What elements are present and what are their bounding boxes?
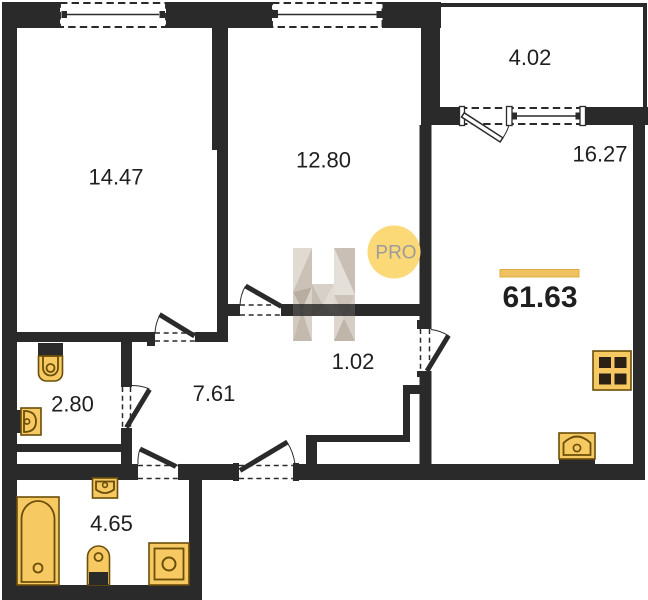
svg-text:12.80: 12.80 [296, 148, 351, 173]
svg-text:1.02: 1.02 [332, 349, 375, 374]
svg-text:16.27: 16.27 [572, 142, 627, 167]
svg-text:14.47: 14.47 [88, 165, 143, 190]
svg-text:7.61: 7.61 [193, 381, 236, 406]
svg-text:2.80: 2.80 [51, 392, 94, 417]
svg-text:PRO: PRO [375, 243, 416, 264]
svg-text:4.65: 4.65 [90, 511, 133, 536]
svg-text:4.02: 4.02 [509, 45, 552, 70]
svg-text:61.63: 61.63 [502, 281, 577, 314]
